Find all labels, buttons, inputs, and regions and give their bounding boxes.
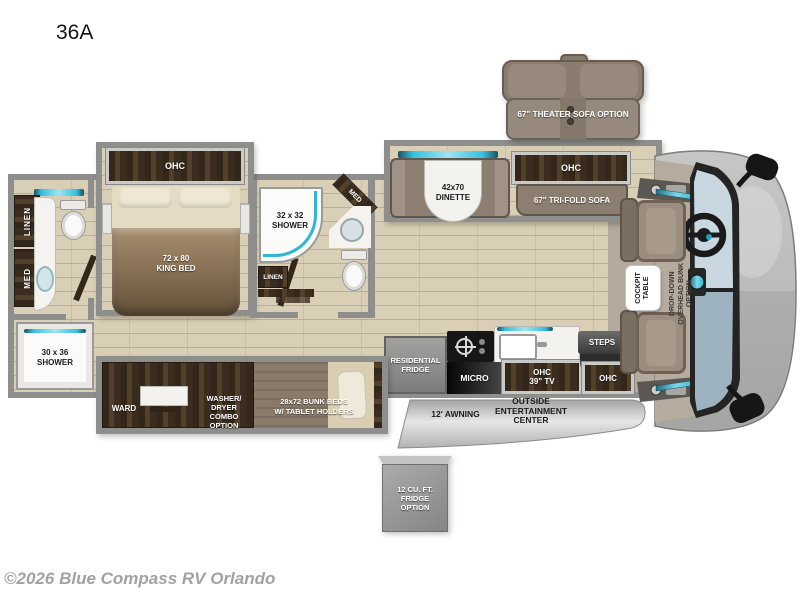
mid-bath-wall-left: [250, 180, 257, 318]
mid-med-label: MED: [347, 188, 363, 204]
fridge-option-label-3: OPTION: [397, 503, 433, 512]
bunk-mattress: [254, 362, 328, 428]
wd-counter: [140, 386, 188, 406]
rear-bath-counter: [34, 197, 56, 311]
dinette-window: [398, 151, 498, 158]
tv-label-1: OHC: [529, 368, 554, 378]
trifold-sofa-label: 67" TRI-FOLD SOFA: [534, 196, 610, 205]
faucet-icon: [537, 342, 547, 347]
mid-bath-bench-2: [276, 297, 310, 303]
cockpit-table-label-2: TABLE: [643, 272, 651, 304]
fridge-option-label-2: FRIDGE: [397, 494, 433, 503]
dropdown-bunk-label-1: DROP-DOWN: [669, 263, 678, 325]
mid-bath-wall-bottom-right: [338, 312, 375, 318]
residential-fridge: RESIDENTIAL FRIDGE: [384, 336, 447, 394]
mid-bath-sink-icon: [340, 218, 364, 242]
mid-toilet-tank: [341, 250, 367, 260]
rear-shower: 30 x 36 SHOWER: [16, 322, 94, 390]
dinette-armrest-left: [392, 160, 405, 216]
nightstand-left: [102, 204, 112, 234]
fridge-label-1: RESIDENTIAL: [390, 356, 440, 365]
rear-shower-glass: [24, 329, 86, 333]
kitchen-counter: [494, 326, 580, 363]
mid-shower-label: 32 x 32 SHOWER: [261, 211, 319, 231]
rear-shower-label: 30 x 36 SHOWER: [18, 348, 92, 368]
bunk-label: 28x72 BUNK BEDS W/ TABLET HOLDERS: [252, 397, 376, 417]
dinette-label: 42x70 DINETTE: [425, 183, 481, 203]
bunk-beds: [254, 362, 382, 428]
page-title: 36A: [56, 21, 93, 45]
sofa-ohc-label: OHC: [561, 163, 581, 173]
mid-bath-bench: [258, 289, 314, 297]
theater-back-cushion-right: [580, 64, 638, 98]
rear-bath-wall-stub-bottom: [88, 298, 94, 320]
outside-entertainment-label: OUTSIDE ENTERTAINMENT CENTER: [481, 397, 581, 426]
rear-bath-wall-stub-top: [88, 178, 94, 208]
fridge-option-body: 12 CU. FT. FRIDGE OPTION: [382, 464, 448, 532]
pillow-left: [118, 188, 172, 208]
king-bed-label: 72 x 80 KING BED: [112, 254, 240, 274]
bedroom-ohc-label: OHC: [165, 161, 185, 171]
cooktop-knobs: [479, 339, 485, 345]
microwave: MICRO: [447, 362, 502, 394]
bunk-headboard: [374, 362, 382, 428]
rear-bath-wall: [14, 314, 66, 320]
tv-label-2: 39" TV: [529, 377, 554, 387]
burner-cross-v: [465, 336, 467, 357]
floorplan-page: 36A LINEN MED 30 x 36 SHOWER OHC 72 x 80: [0, 0, 800, 600]
nightstand-right: [240, 204, 250, 234]
fridge-option-label-1: 12 CU. FT.: [397, 485, 433, 494]
mid-linen-label: LINEN: [263, 274, 283, 281]
rear-med-label: MED: [23, 268, 32, 289]
rear-toilet-tank: [60, 200, 86, 210]
mid-bath-wall-bottom-left: [250, 312, 298, 318]
dinette-table: 42x70 DINETTE: [424, 160, 482, 222]
rear-linen-label: LINEN: [23, 207, 32, 236]
wd-option-label: WASHER/ DRYER COMBO OPTION: [194, 394, 254, 430]
rear-toilet-icon: [61, 211, 86, 240]
dropdown-bunk-note: DROP-DOWN OVERHEAD BUNK OPTION: [658, 246, 706, 342]
theater-sofa-option: 67" THEATER SOFA OPTION: [500, 54, 646, 142]
mid-toilet-icon: [342, 261, 366, 291]
fridge-label-2: FRIDGE: [390, 365, 440, 374]
theater-sofa-label: 67" THEATER SOFA OPTION: [500, 110, 646, 119]
ward-label: WARD: [104, 404, 144, 413]
micro-label: MICRO: [460, 373, 488, 383]
theater-back-cushion-left: [508, 64, 566, 98]
rear-bath-sink-icon: [36, 266, 54, 292]
dropdown-bunk-label-2: OVERHEAD BUNK: [678, 263, 687, 325]
dropdown-bunk-label-3: OPTION: [686, 263, 695, 325]
pillow-right: [178, 188, 232, 208]
kitchen-window: [497, 327, 553, 331]
kitchen-sink-icon: [499, 334, 537, 360]
cooktop: [447, 331, 494, 362]
cockpit-table: COCKPIT TABLE: [626, 266, 660, 310]
mid-linen-cabinet: LINEN: [258, 266, 288, 288]
dinette-armrest-right: [495, 160, 508, 216]
bedroom-ohc: OHC: [106, 148, 244, 184]
ohc-tv-cabinet: OHC 39" TV: [502, 360, 582, 394]
wd-slot: [150, 407, 180, 412]
copyright-text: ©2026 Blue Compass RV Orlando: [4, 569, 275, 589]
king-bed: 72 x 80 KING BED: [112, 186, 240, 316]
fridge-option-box: 12 CU. FT. FRIDGE OPTION: [378, 456, 452, 532]
theater-cupholder-2: [567, 118, 574, 125]
rear-bath-window: [34, 189, 84, 196]
